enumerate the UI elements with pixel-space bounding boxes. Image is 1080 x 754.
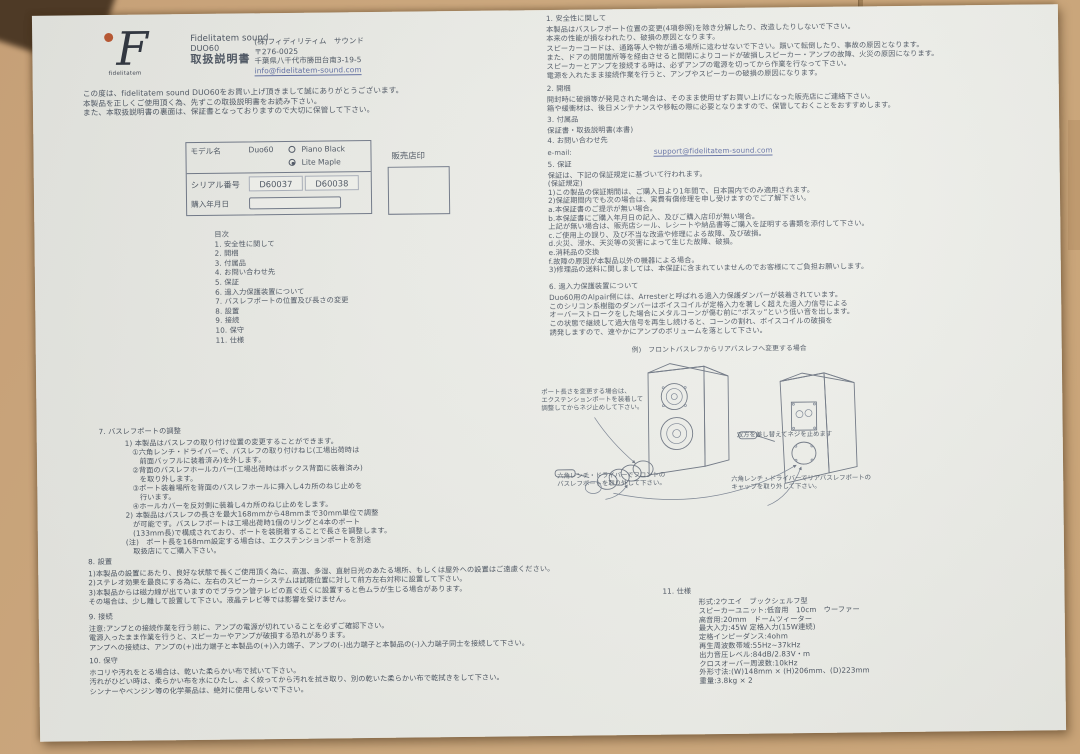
tile-grout-line-right — [1068, 120, 1080, 250]
model-value: Duo60 — [248, 145, 273, 154]
section3: 3. 付属品 保証書・取扱説明書(本書) — [547, 114, 633, 136]
text-line: 重量:3.8kg × 2 — [699, 676, 869, 687]
serial-label: シリアル番号 — [191, 178, 240, 191]
rear-speaker-drawing — [738, 373, 857, 484]
section4: 4. お問い合わせ先 e-mail: support@fidelitatem-s… — [547, 133, 772, 158]
section11-title: 11. 仕様 — [662, 586, 691, 596]
color-option-piano-black: Piano Black — [288, 144, 345, 154]
section7-body: 1) 本製品はバスレフの取り付け位置の変更することができます。 ①六角レンチ・ド… — [125, 436, 392, 556]
company-email-link: info@fidelitatem-sound.com — [255, 66, 362, 76]
diagram-label-extension: ポート長さを変更する場合は、エクステンションポートを装着して調整してからネジ止め… — [541, 388, 643, 413]
text-line: また、本取扱説明書の裏面は、保証書となっておりますので大切に保管して下さい。 — [83, 105, 404, 118]
document-paper: F fidelitatem Fidelitatem sound DUO60 取扱… — [32, 4, 1066, 742]
logo-letter: F — [116, 26, 188, 71]
text-line: (株)フィディリティム サウンド — [254, 36, 364, 47]
model-label: モデル名 — [190, 146, 220, 157]
section5: 5. 保証 保証は、下記の保証規定に基づいて行われます。(保証規定)1)この製品… — [548, 157, 870, 274]
section2: 2. 開梱 開封時に破損等が発見された場合は、そのまま使用せずお買い上げになった… — [547, 80, 895, 114]
section10: 10. 保守 ホコリや汚れをとる場合は、乾いた柔らかい布で拭いて下さい。汚れがひ… — [89, 652, 504, 697]
text-line: 11. 仕様 — [216, 334, 349, 345]
radio-lite-maple-icon — [289, 159, 296, 166]
email-label: e-mail: — [547, 148, 651, 159]
radio-piano-black-icon — [288, 146, 295, 153]
photo-of-manual: { "header": { "logo_letter": "F", "logo_… — [0, 0, 1080, 754]
text-line: キャップを取り外して下さい。 — [731, 482, 871, 491]
section11-spec-list: 形式:2ウエイ ブックシェルフ型スピーカーユニット:低音用 10cm ウーファー… — [699, 596, 870, 686]
diagram-label-rear-cap: 六角レンチ・ドライバーでリアバスレフポートのキャップを取り外して下さい。 — [731, 474, 871, 491]
serial-row: シリアル番号 D60037 D60038 — [187, 172, 371, 197]
color-label: Lite Maple — [302, 157, 341, 166]
text-line: バスレフポートを取り外して下さい。 — [557, 479, 666, 488]
support-email-link: support@fidelitatem-sound.com — [654, 147, 773, 157]
diagram-label-swap: 双方を差し替えてネジを止めます — [737, 431, 833, 440]
section3-title: 3. 付属品 — [547, 114, 633, 124]
section7-title: 7. バスレフポートの調整 — [99, 426, 181, 436]
serial-value-1: D60037 — [249, 176, 303, 192]
logo-dot-icon — [104, 33, 113, 42]
color-label: Piano Black — [301, 144, 345, 153]
text-line: 7. バスレフポートの位置及び長さの変更 — [215, 295, 348, 306]
model-row: モデル名 Duo60 Piano Black Lite Maple — [186, 141, 370, 174]
table-of-contents: 目次 1. 安全性に関して2. 開梱3. 付属品4. お問い合わせ先5. 保証6… — [214, 228, 349, 345]
fidelitatem-logo: F fidelitatem — [102, 26, 189, 85]
dealer-stamp-box — [388, 166, 451, 215]
purchase-date-label: 購入年月日 — [191, 199, 229, 210]
color-option-lite-maple: Lite Maple — [289, 157, 341, 167]
section9: 9. 接続 注意:アンプとの接続作業を行う前に、アンプの電源が切れていることを必… — [89, 607, 529, 652]
dealer-stamp-label: 販売店印 — [391, 149, 425, 161]
section6: 6. 過入力保護装置について Duo60用のAlpair側には、Arrester… — [549, 280, 854, 338]
section4-title: 4. お問い合わせ先 — [547, 133, 772, 145]
section1: 1. 安全性に関して 本製品はバスレフポート位置の変更(4項参照)を除き分解した… — [546, 10, 939, 81]
section8: 8. 設置 1)本製品の設置にあたり、良好な状態で長くご使用頂く為に、高温、多湿… — [88, 552, 555, 607]
diagram-caption: 例) フロントバスレフからリアバスレフへ変更する場合 — [632, 344, 807, 355]
serial-value-2: D60038 — [305, 175, 359, 191]
speaker-diagram — [552, 354, 894, 524]
purchase-date-field — [249, 196, 341, 209]
text-line: 調整してからネジ止めして下さい。 — [541, 404, 643, 413]
intro-paragraph: この度は、fidelitatem sound DUO60をお買い上げ頂きまして誠… — [83, 86, 404, 118]
company-address-block: (株)フィディリティム サウンド〒276-0025千葉県八千代市勝田台南3-19… — [254, 36, 364, 76]
purchase-date-row: 購入年月日 — [187, 195, 371, 215]
model-info-table: モデル名 Duo60 Piano Black Lite Maple シリアル番号… — [185, 140, 372, 216]
text-line: 誘発しますので、速やかにアンプのボリュームを落として下さい。 — [550, 326, 855, 338]
text-line: 3)修理品の送料に関しましては、本保証に含まれていませんのでお客様にてご負担お願… — [549, 262, 870, 274]
diagram-label-front-port: 六角レンチ・ドライバーでフロントのバスレフポートを取り外して下さい。 — [557, 472, 666, 489]
